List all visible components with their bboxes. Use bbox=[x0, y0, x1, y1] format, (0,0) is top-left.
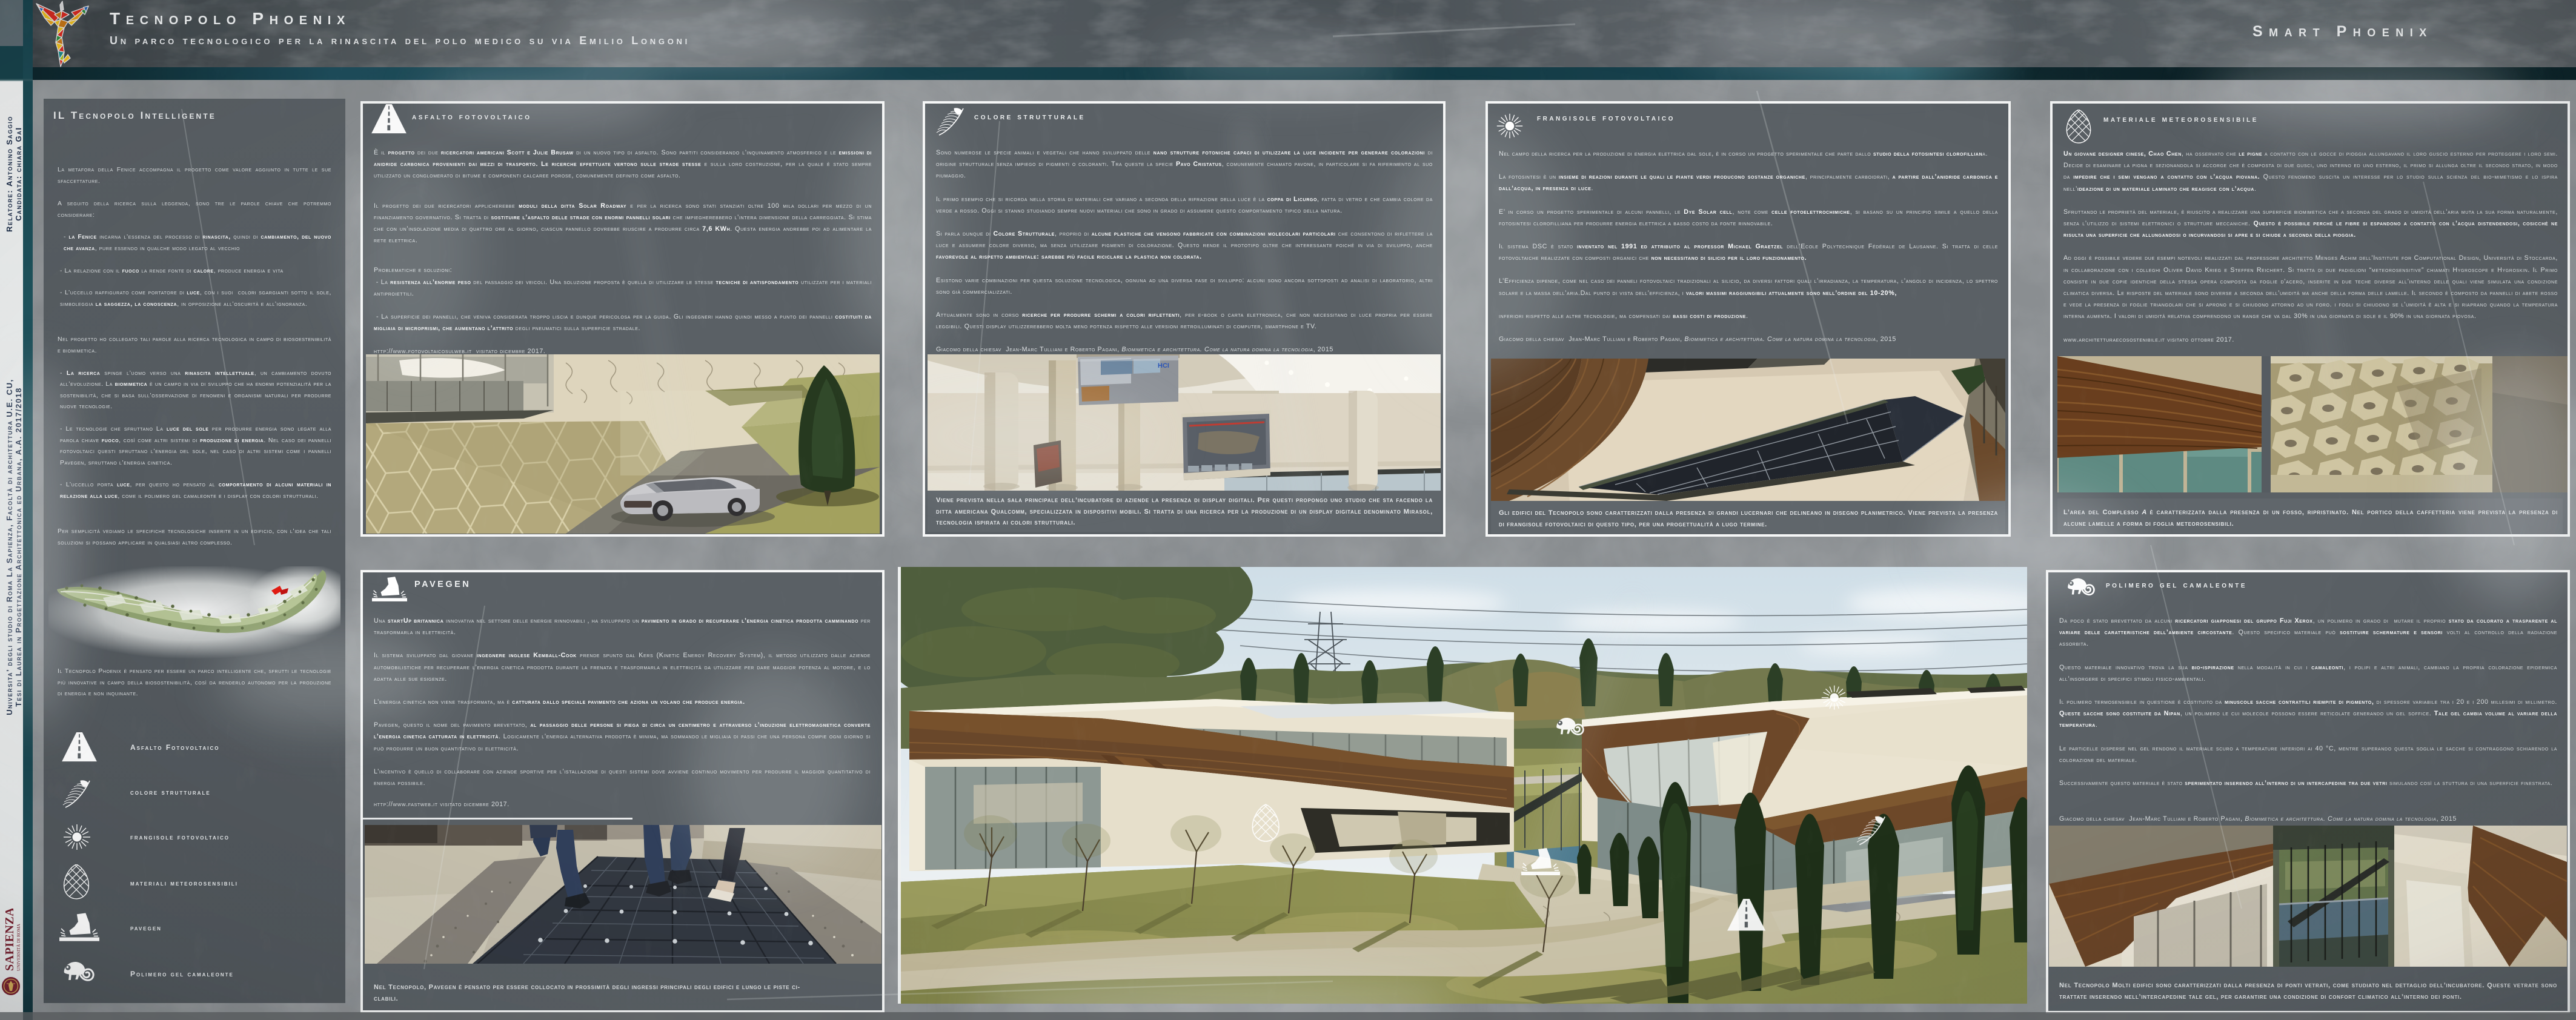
svg-text:HCI: HCI bbox=[1158, 362, 1169, 369]
svg-text:SAPIENZA: SAPIENZA bbox=[3, 909, 16, 971]
svg-text:UNIVERSITÀ DI ROMA: UNIVERSITÀ DI ROMA bbox=[15, 923, 21, 971]
